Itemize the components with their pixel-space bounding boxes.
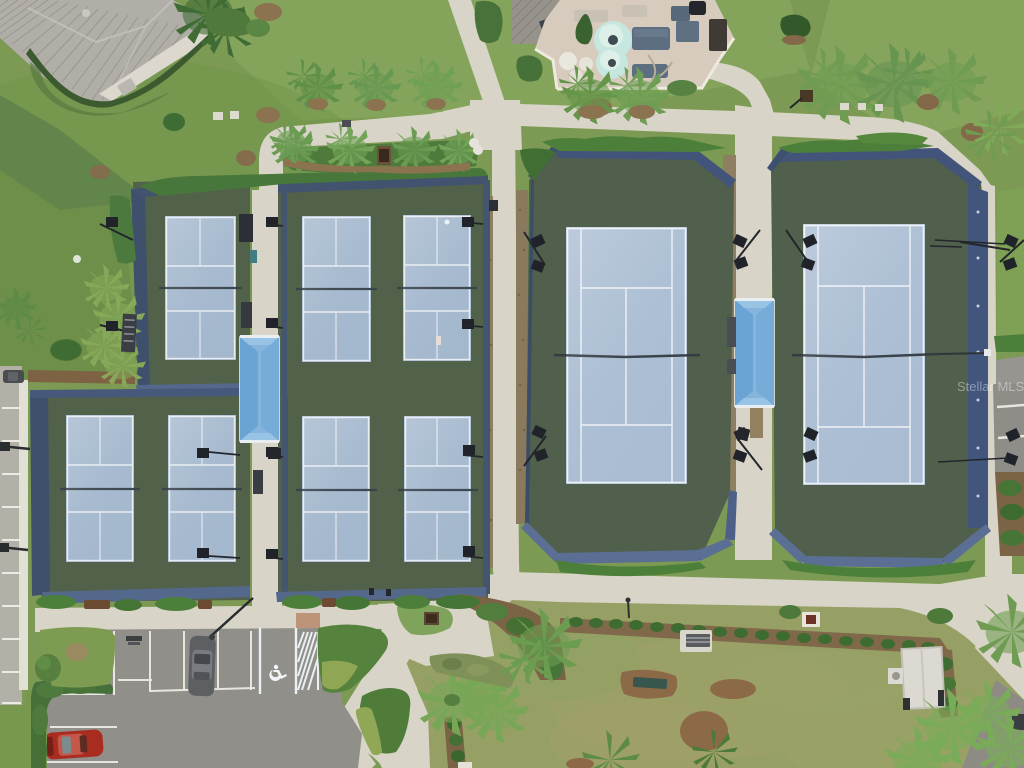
svg-text:Stellar MLS: Stellar MLS (957, 379, 1024, 394)
